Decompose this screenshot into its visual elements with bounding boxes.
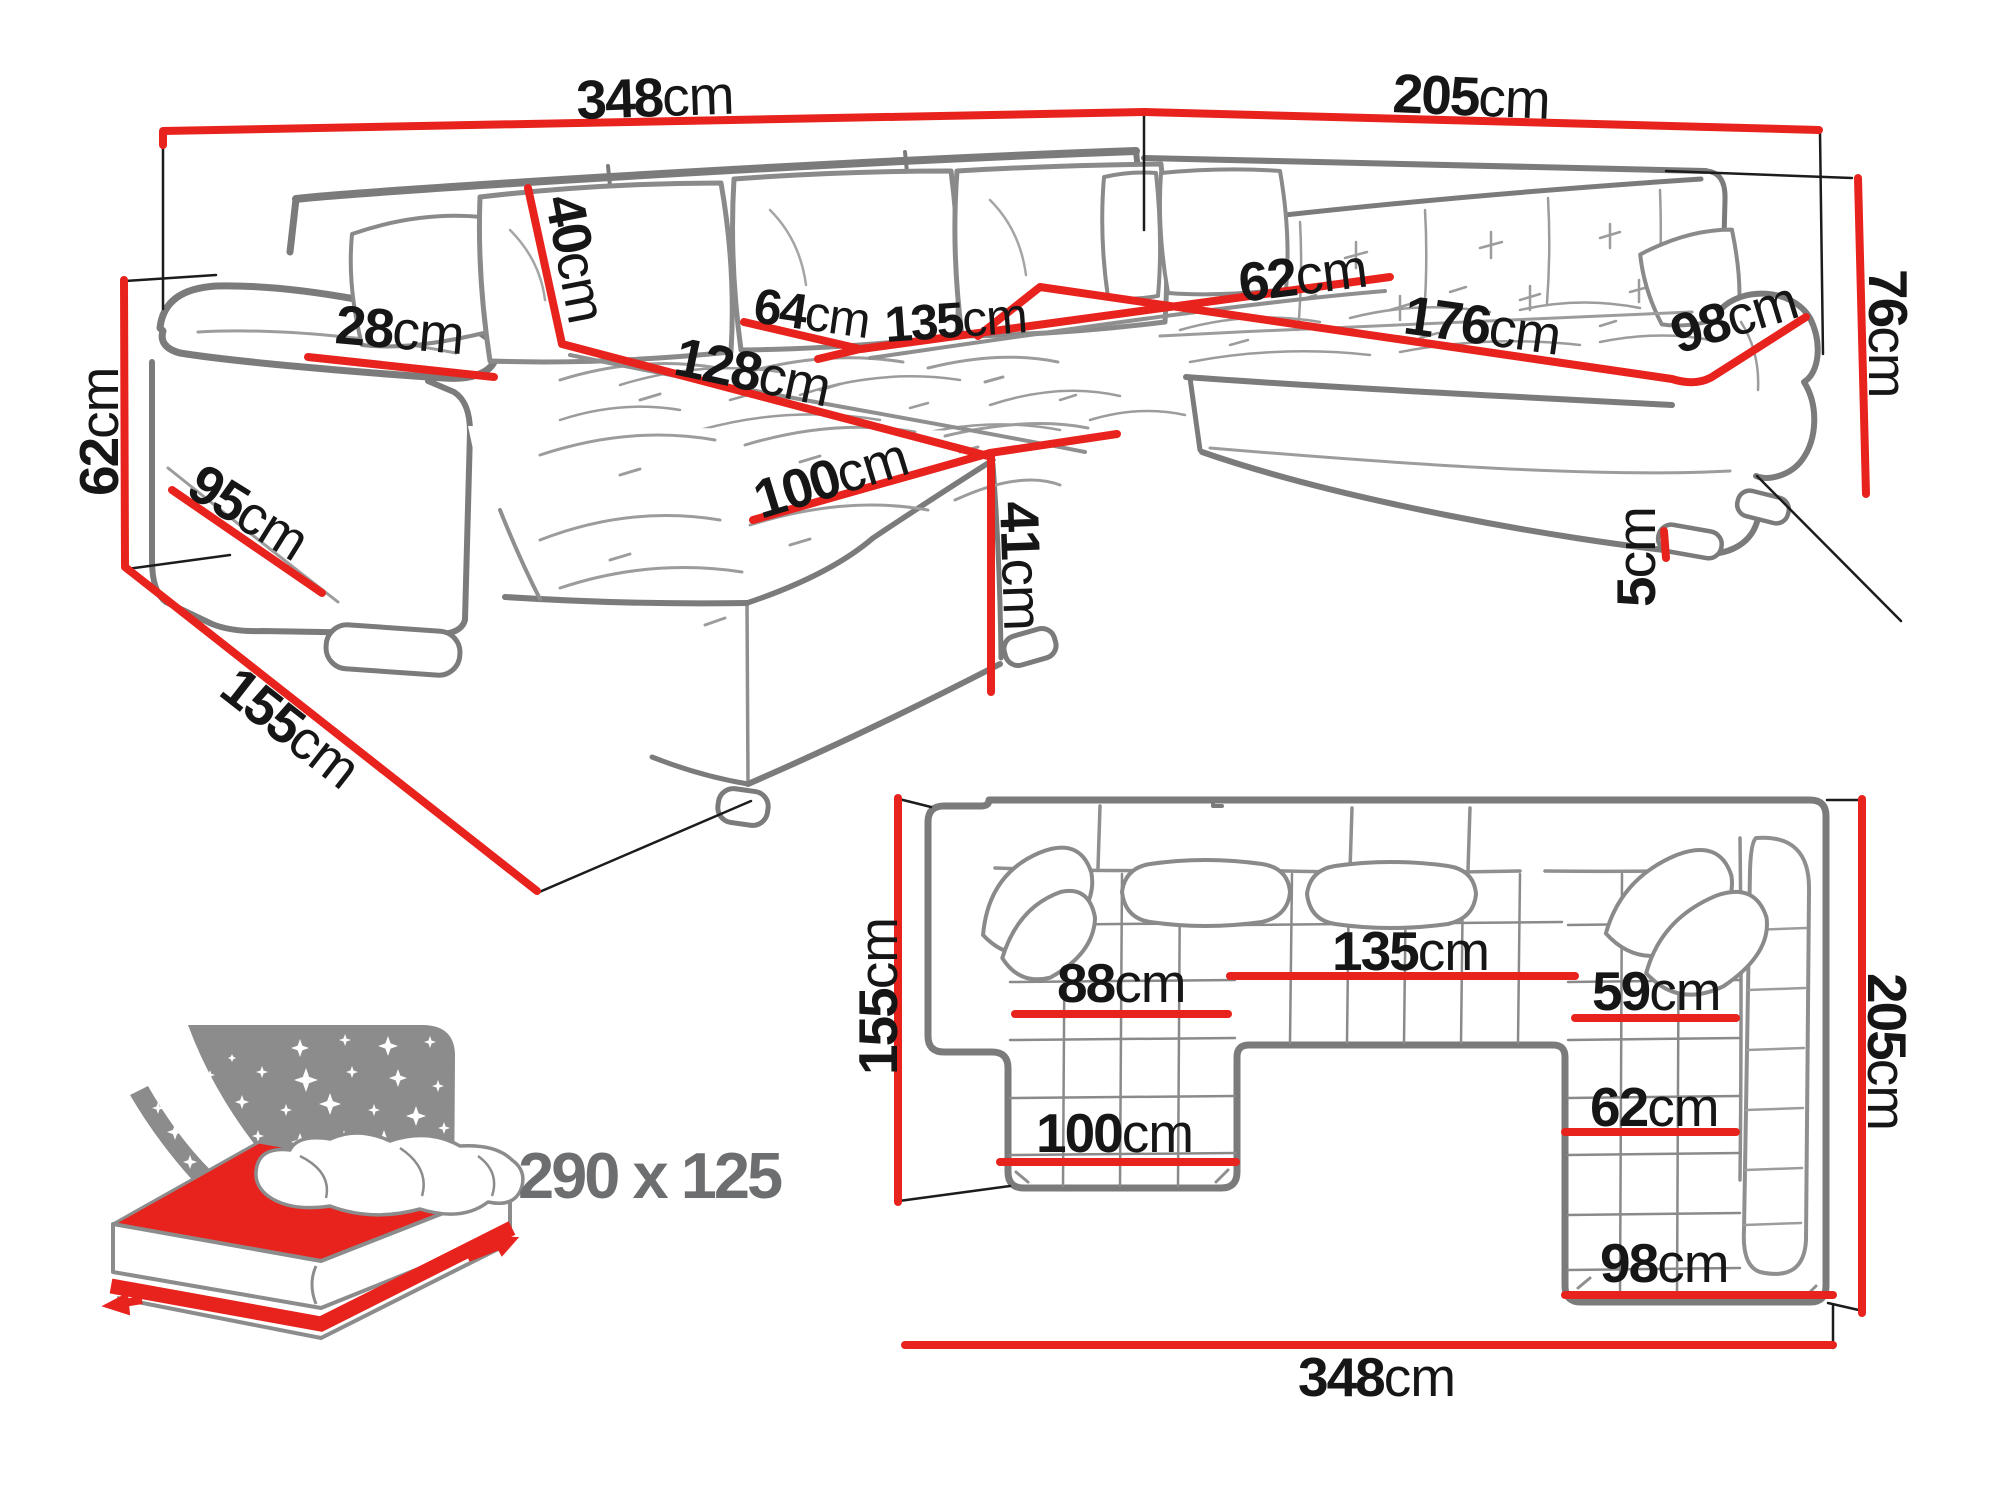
- svg-text:135cm: 135cm: [883, 287, 1029, 353]
- svg-text:290 x 125: 290 x 125: [518, 1139, 782, 1212]
- svg-text:88cm: 88cm: [1057, 952, 1186, 1014]
- svg-text:62cm: 62cm: [1590, 1076, 1719, 1138]
- svg-text:41cm: 41cm: [988, 500, 1054, 631]
- svg-text:205cm: 205cm: [1391, 62, 1551, 131]
- svg-text:98cm: 98cm: [1600, 1232, 1729, 1294]
- svg-text:348cm: 348cm: [1298, 1346, 1455, 1408]
- svg-text:28cm: 28cm: [333, 293, 466, 366]
- svg-text:155cm: 155cm: [847, 918, 909, 1075]
- svg-text:59cm: 59cm: [1592, 960, 1721, 1022]
- svg-text:348cm: 348cm: [575, 64, 734, 131]
- svg-text:205cm: 205cm: [1856, 973, 1918, 1130]
- svg-text:62cm: 62cm: [68, 367, 130, 496]
- svg-text:76cm: 76cm: [1857, 269, 1919, 398]
- svg-text:135cm: 135cm: [1332, 920, 1489, 982]
- svg-text:5cm: 5cm: [1605, 507, 1667, 607]
- svg-text:100cm: 100cm: [1036, 1102, 1193, 1164]
